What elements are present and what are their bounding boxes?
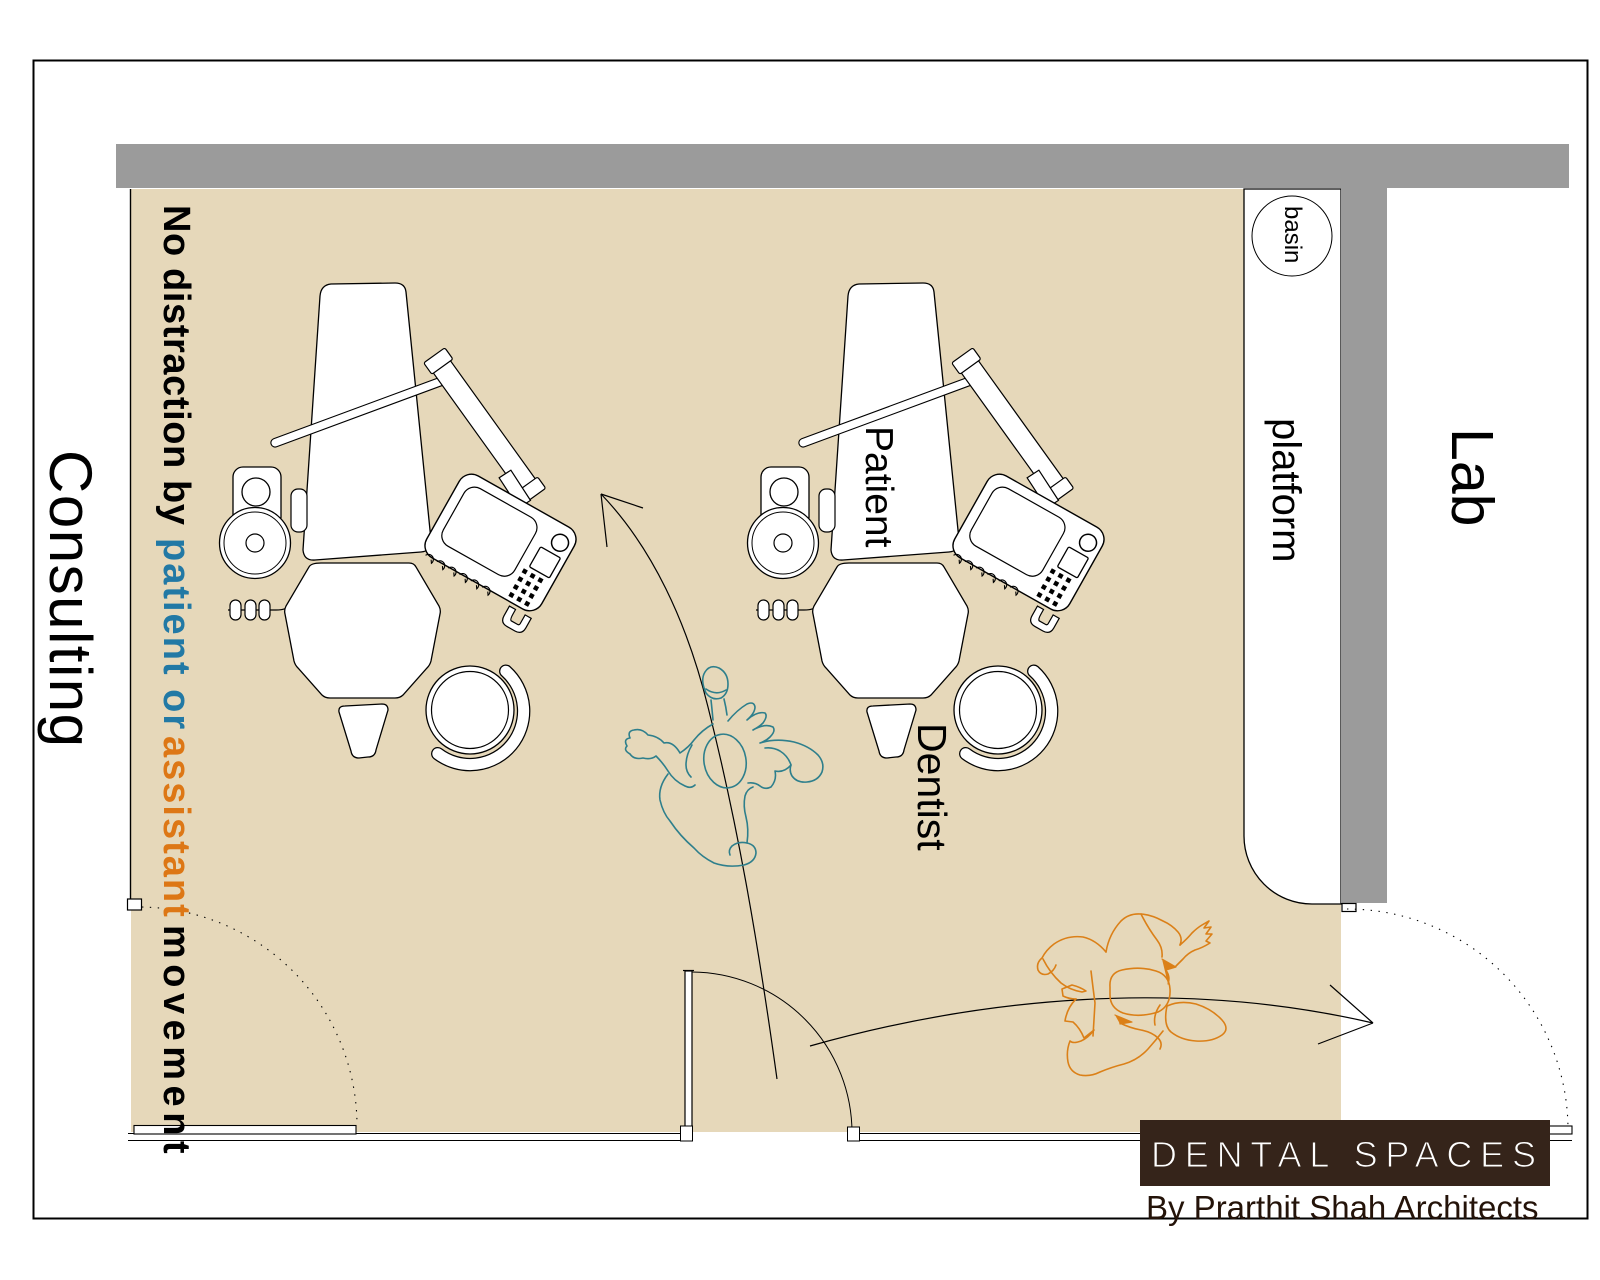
- svg-text:assistant: assistant: [155, 736, 197, 919]
- svg-text:basin: basin: [1279, 206, 1306, 263]
- svg-text:DENTAL SPACES: DENTAL SPACES: [1151, 1134, 1544, 1175]
- svg-text:Consulting: Consulting: [37, 450, 104, 749]
- svg-text:Lab: Lab: [1439, 428, 1505, 526]
- svg-text:Patient: Patient: [857, 426, 900, 548]
- svg-text:patient or: patient or: [155, 538, 197, 731]
- svg-text:By Prarthit Shah Architects: By Prarthit Shah Architects: [1146, 1189, 1539, 1226]
- svg-text:Dentist: Dentist: [909, 723, 955, 851]
- svg-text:platform: platform: [1264, 418, 1308, 563]
- svg-text:No distraction by: No distraction by: [155, 205, 197, 526]
- svg-text:movement: movement: [155, 925, 197, 1159]
